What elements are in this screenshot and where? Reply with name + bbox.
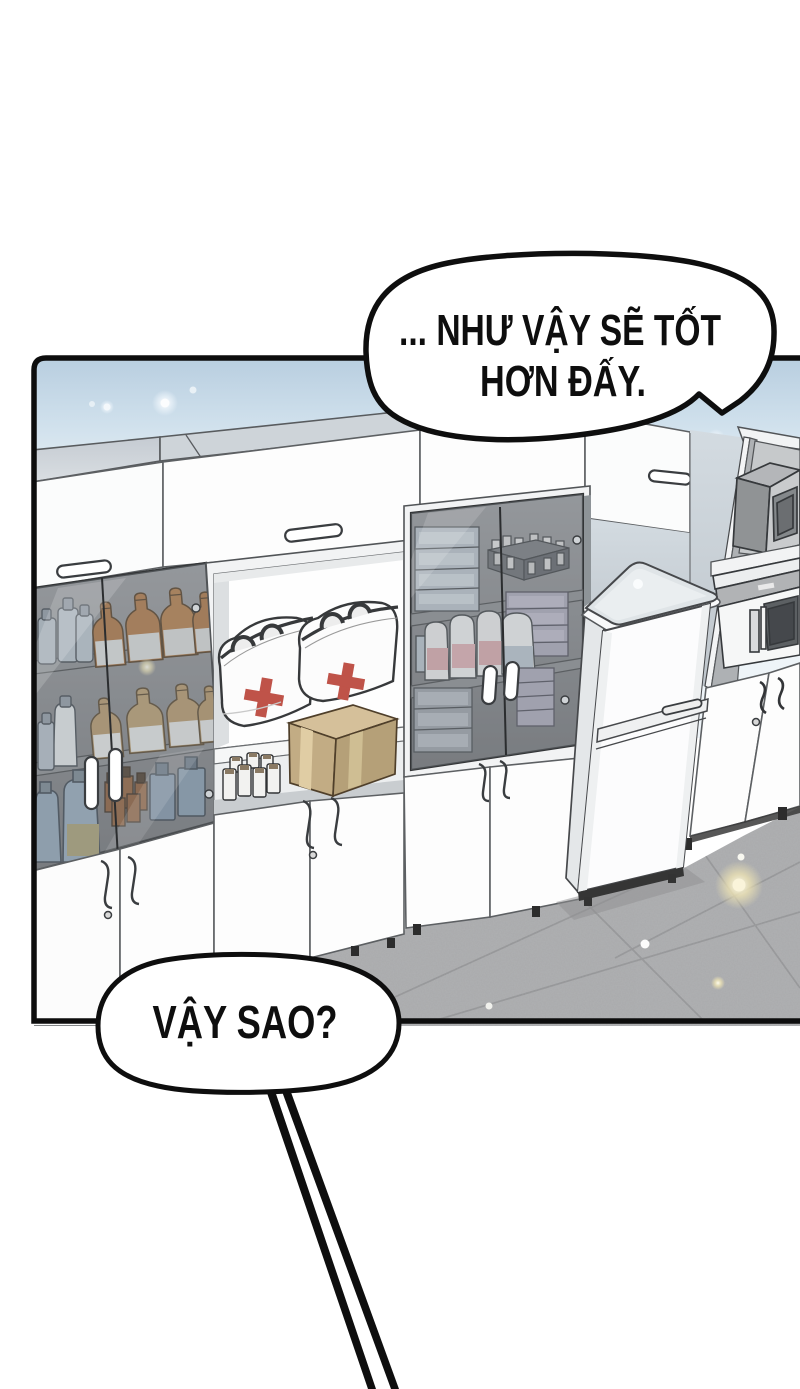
svg-text:VẬY SAO?: VẬY SAO? (153, 996, 338, 1048)
svg-text:... NHƯ VẬY SẼ TỐT: ... NHƯ VẬY SẼ TỐT (399, 304, 721, 355)
svg-text:HƠN ĐẤY.: HƠN ĐẤY. (480, 356, 646, 406)
